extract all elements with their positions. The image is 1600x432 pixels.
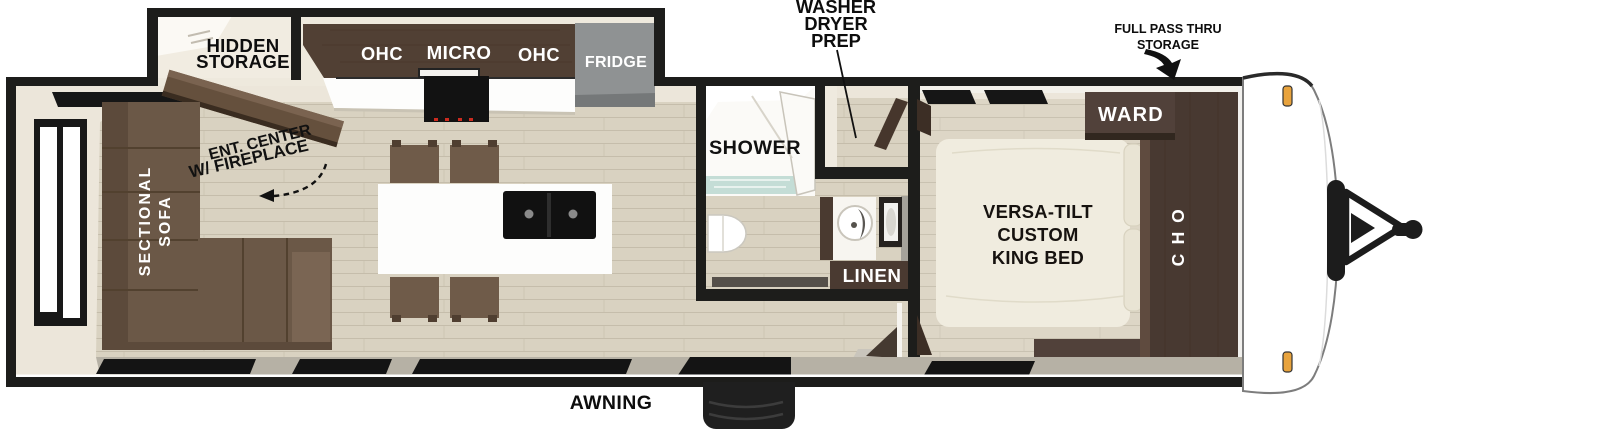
svg-text:VERSA-TILT: VERSA-TILT [983,201,1093,222]
svg-text:MICRO: MICRO [427,42,492,63]
svg-text:SHOWER: SHOWER [709,137,801,159]
svg-text:AWNING: AWNING [570,392,653,414]
svg-text:PREP: PREP [811,30,861,51]
svg-text:O: O [1168,209,1188,223]
svg-text:FRIDGE: FRIDGE [585,54,647,71]
svg-text:OHC: OHC [518,45,560,65]
svg-text:STORAGE: STORAGE [196,51,290,72]
svg-text:C: C [1168,253,1188,266]
svg-text:SOFA: SOFA [157,195,174,247]
svg-text:WARD: WARD [1098,104,1164,126]
svg-text:FULL PASS THRU: FULL PASS THRU [1114,22,1221,36]
svg-text:KING BED: KING BED [992,247,1084,268]
svg-text:LINEN: LINEN [843,265,902,286]
svg-text:SECTIONAL: SECTIONAL [137,166,154,276]
svg-text:CUSTOM: CUSTOM [997,224,1078,245]
svg-text:OHC: OHC [361,44,403,64]
svg-text:H: H [1168,232,1188,245]
